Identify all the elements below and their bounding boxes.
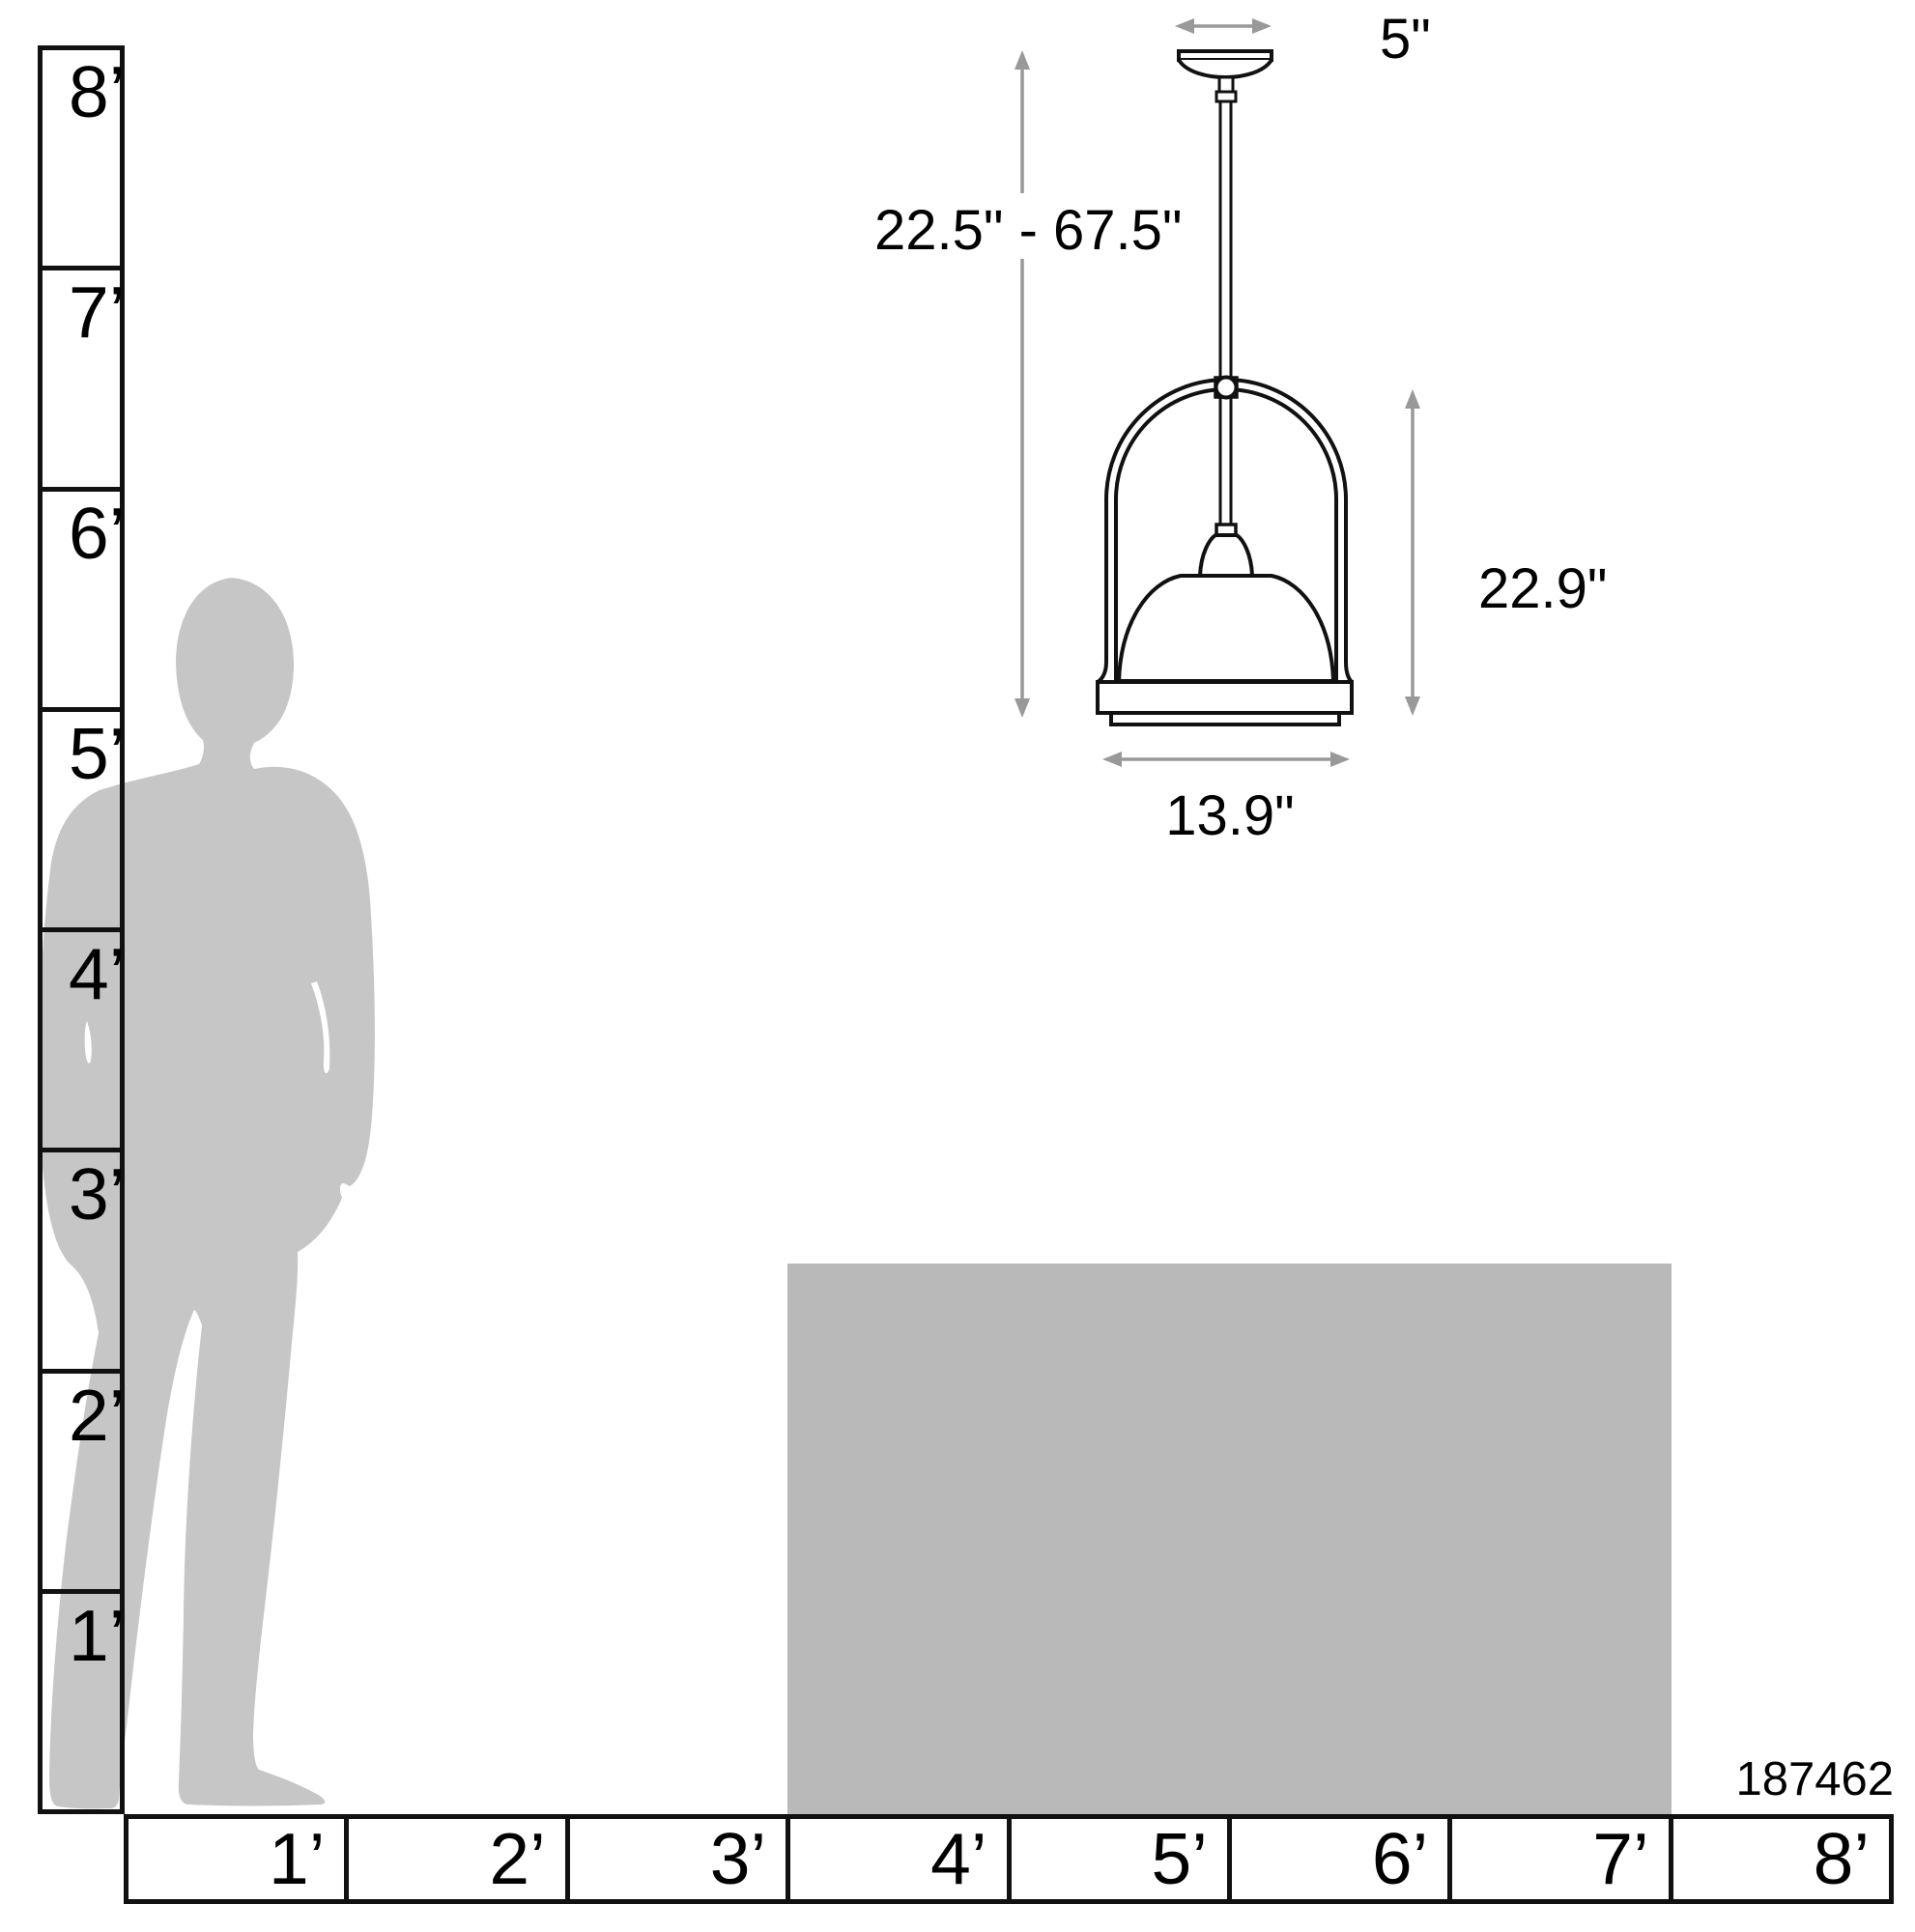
fixture-height-label: 22.9" bbox=[1478, 561, 1607, 617]
vruler-label: 5’ bbox=[43, 712, 120, 790]
pivot-ring bbox=[1216, 378, 1237, 398]
suspension-height-label: 22.5" - 67.5" bbox=[874, 203, 1174, 259]
vruler-label: 3’ bbox=[43, 1152, 120, 1231]
rim-lip bbox=[1111, 713, 1339, 724]
hruler-cell: 1’ bbox=[129, 1819, 349, 1899]
vertical-ruler: 8’7’6’5’4’3’2’1’ bbox=[38, 45, 125, 1814]
vruler-cell: 8’ bbox=[43, 50, 120, 270]
hruler-label: 2’ bbox=[489, 1823, 564, 1895]
fixture-width-label: 13.9" bbox=[1153, 788, 1307, 844]
hruler-label: 6’ bbox=[1372, 1823, 1447, 1895]
vruler-cell: 6’ bbox=[43, 492, 120, 712]
scale-diagram: 8’7’6’5’4’3’2’1’ 1’2’3’4’5’6’7’8’ 5" 22.… bbox=[0, 0, 1915, 1932]
hruler-cell: 4’ bbox=[790, 1819, 1011, 1899]
hruler-label: 1’ bbox=[269, 1823, 344, 1895]
vruler-cell: 1’ bbox=[43, 1594, 120, 1809]
hruler-label: 5’ bbox=[1152, 1823, 1227, 1895]
product-sku: 187462 bbox=[1701, 1756, 1894, 1804]
vruler-label: 2’ bbox=[43, 1374, 120, 1452]
vruler-label: 8’ bbox=[43, 50, 120, 128]
hruler-cell: 5’ bbox=[1012, 1819, 1232, 1899]
vruler-label: 4’ bbox=[43, 932, 120, 1010]
hruler-cell: 3’ bbox=[570, 1819, 790, 1899]
horizontal-ruler: 1’2’3’4’5’6’7’8’ bbox=[124, 1814, 1894, 1904]
vruler-label: 7’ bbox=[43, 270, 120, 349]
canopy-plate bbox=[1179, 51, 1272, 60]
shade-dome bbox=[1119, 576, 1333, 681]
hruler-label: 3’ bbox=[710, 1823, 786, 1895]
vruler-cell: 2’ bbox=[43, 1374, 120, 1594]
vruler-label: 6’ bbox=[43, 492, 120, 570]
hruler-cell: 8’ bbox=[1673, 1819, 1889, 1899]
canopy-collar bbox=[1216, 92, 1236, 101]
vruler-cell: 4’ bbox=[43, 932, 120, 1152]
vruler-cell: 5’ bbox=[43, 712, 120, 932]
down-rod bbox=[1220, 97, 1231, 527]
pendant-drawing bbox=[1098, 51, 1352, 724]
vruler-cell: 7’ bbox=[43, 270, 120, 491]
canopy-width-label: 5" bbox=[1380, 12, 1431, 68]
hruler-cell: 2’ bbox=[349, 1819, 569, 1899]
vruler-cell: 3’ bbox=[43, 1152, 120, 1373]
hruler-label: 4’ bbox=[930, 1823, 1006, 1895]
rim-band bbox=[1098, 682, 1352, 713]
hruler-label: 7’ bbox=[1592, 1823, 1668, 1895]
hruler-label: 8’ bbox=[1814, 1823, 1889, 1895]
hruler-cell: 7’ bbox=[1452, 1819, 1672, 1899]
scene-graphics bbox=[0, 0, 1915, 1932]
hruler-cell: 6’ bbox=[1232, 1819, 1452, 1899]
socket-bell bbox=[1200, 535, 1252, 576]
vruler-label: 1’ bbox=[43, 1594, 120, 1672]
canopy-bowl bbox=[1179, 60, 1272, 77]
